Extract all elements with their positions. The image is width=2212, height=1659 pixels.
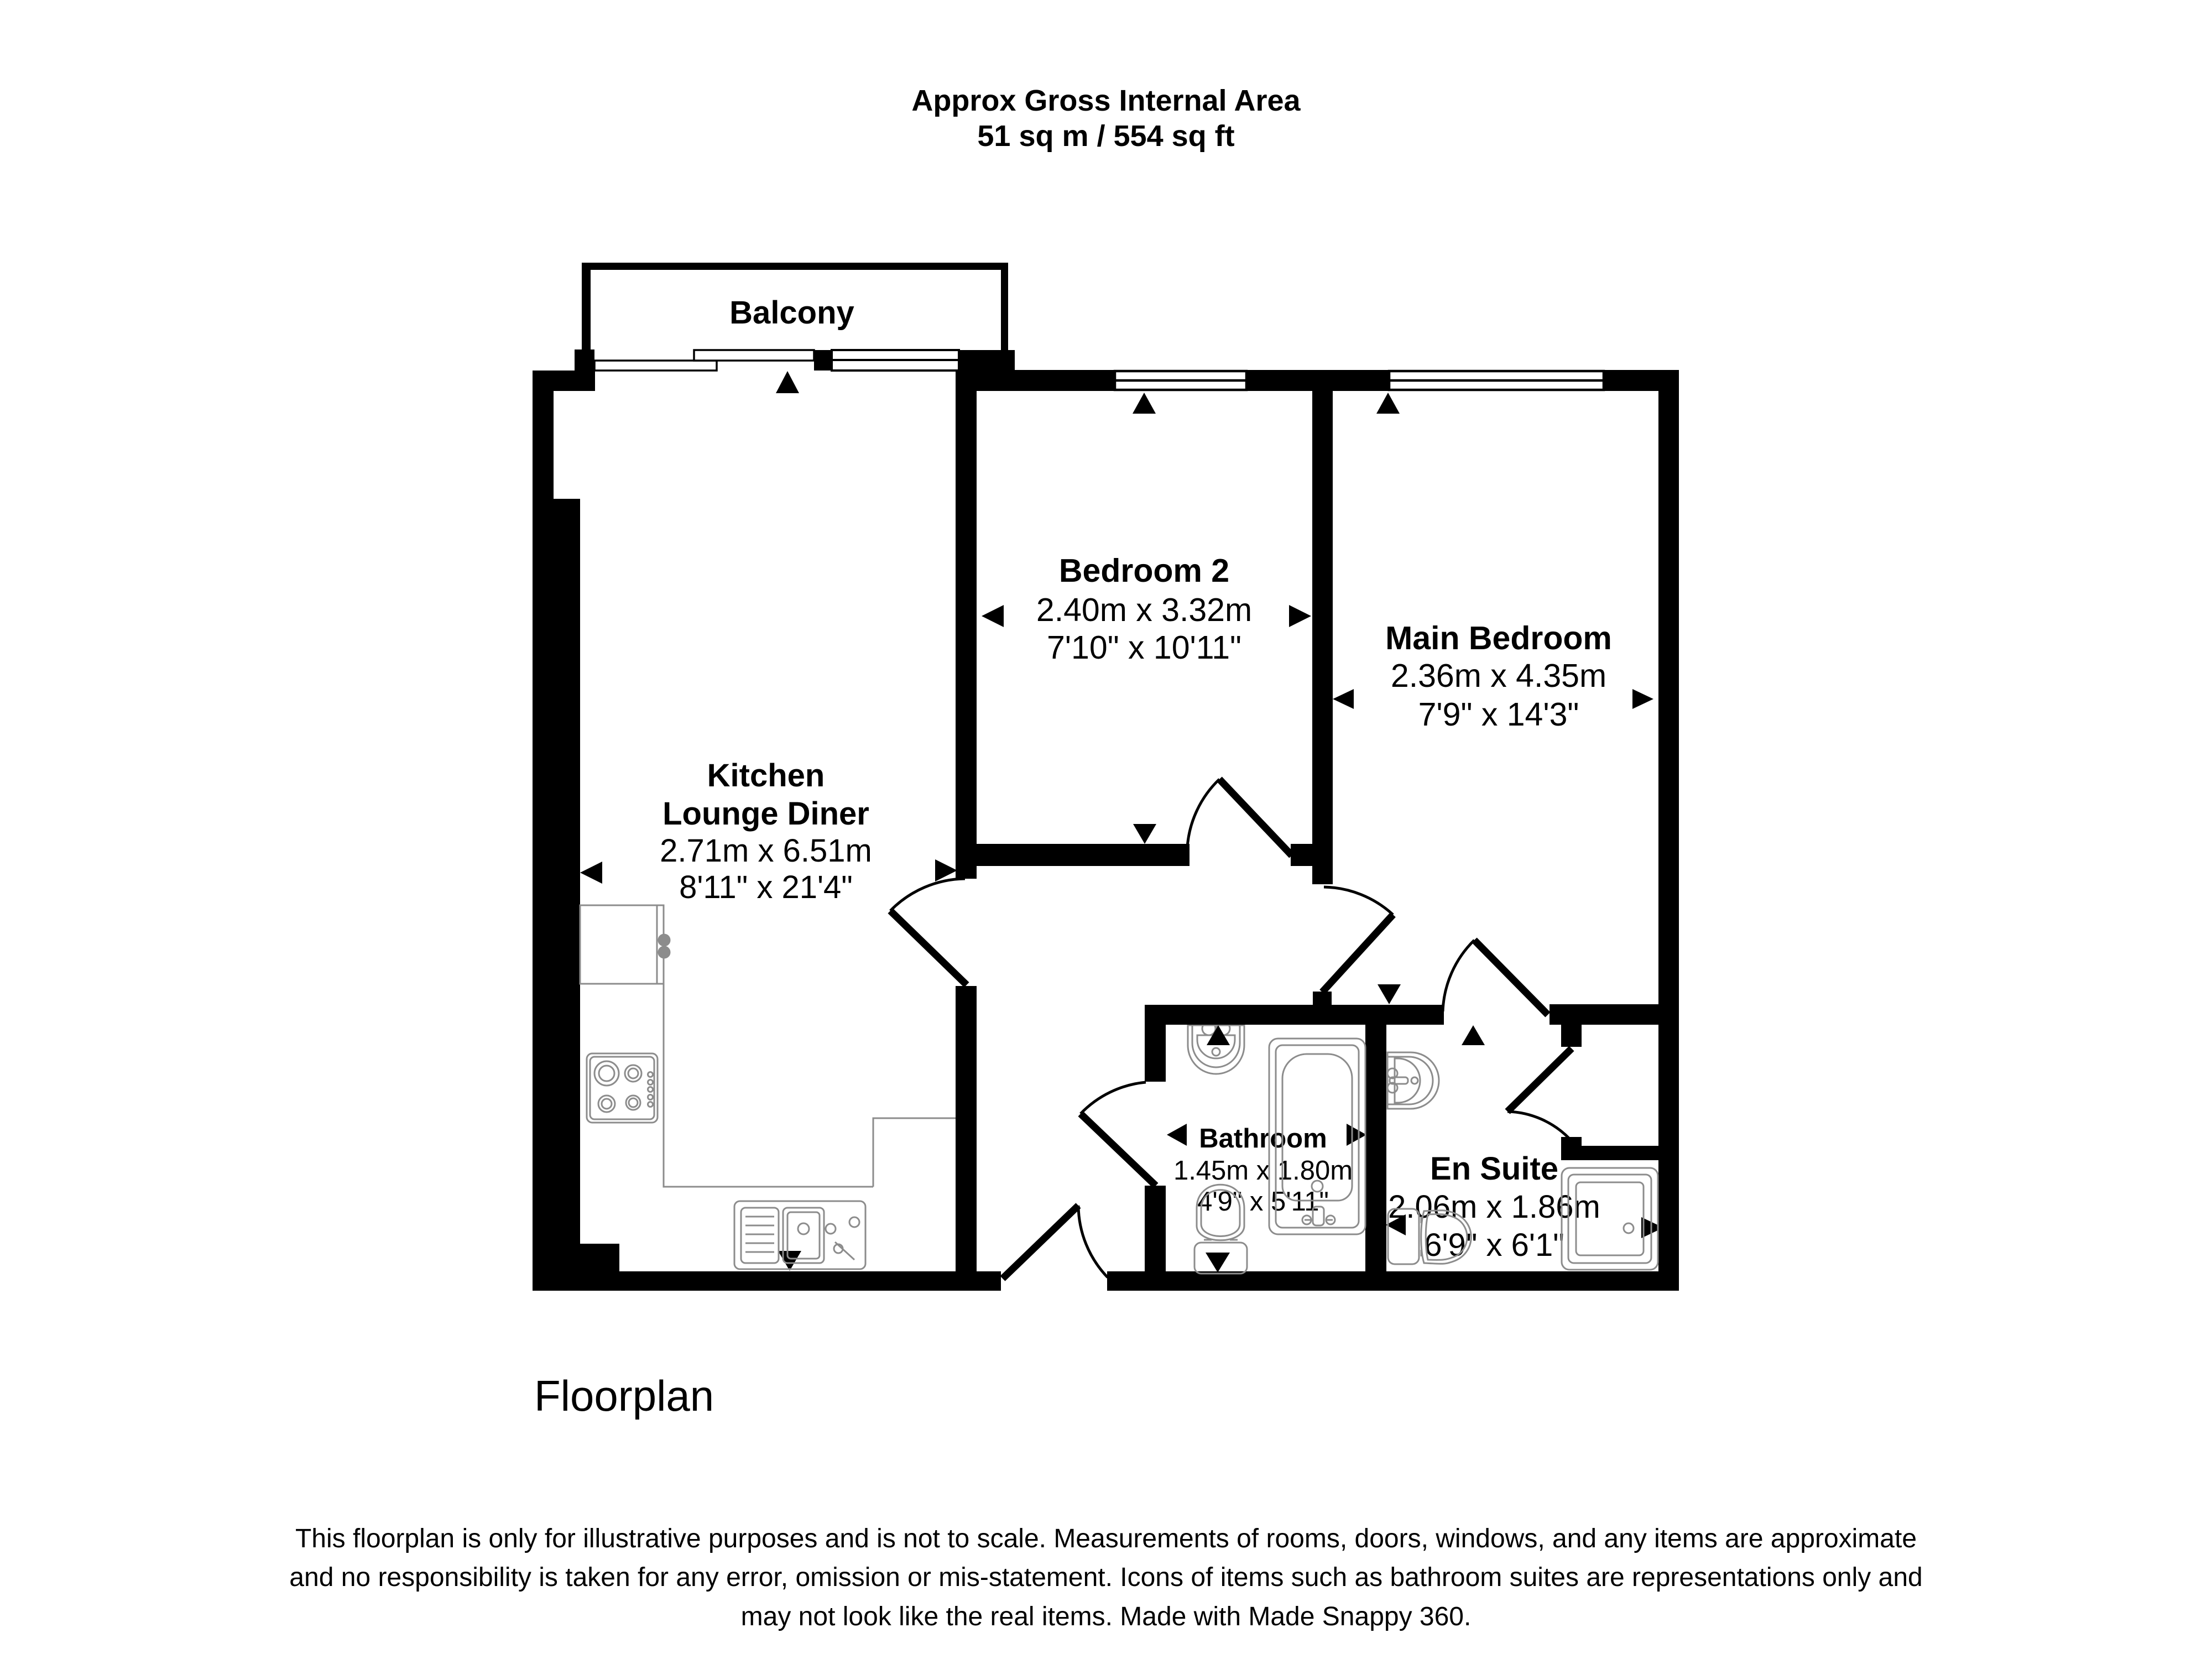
svg-text:51 sq m / 554 sq ft: 51 sq m / 554 sq ft: [977, 119, 1234, 153]
svg-text:8'11" x 21'4": 8'11" x 21'4": [679, 869, 853, 905]
svg-text:Main Bedroom: Main Bedroom: [1385, 620, 1612, 656]
svg-text:Floorplan: Floorplan: [534, 1371, 714, 1420]
svg-text:2.71m x 6.51m: 2.71m x 6.51m: [660, 833, 872, 869]
svg-text:may not look like the real ite: may not look like the real items. Made w…: [741, 1602, 1472, 1631]
svg-text:7'9" x 14'3": 7'9" x 14'3": [1418, 696, 1579, 733]
svg-text:Balcony: Balcony: [729, 295, 854, 331]
svg-text:6'9" x 6'1": 6'9" x 6'1": [1424, 1227, 1564, 1263]
svg-text:Bedroom 2: Bedroom 2: [1059, 552, 1229, 589]
svg-text:Approx Gross Internal Area: Approx Gross Internal Area: [911, 84, 1301, 117]
svg-text:En Suite: En Suite: [1430, 1151, 1558, 1187]
svg-text:7'10" x 10'11": 7'10" x 10'11": [1047, 629, 1241, 666]
svg-text:Kitchen: Kitchen: [707, 758, 825, 794]
svg-text:This floorplan is only for ill: This floorplan is only for illustrative …: [295, 1524, 1917, 1553]
svg-text:and no responsibility is taken: and no responsibility is taken for any e…: [289, 1563, 1922, 1592]
svg-text:Lounge Diner: Lounge Diner: [662, 796, 869, 832]
svg-text:4'9" x 5'11": 4'9" x 5'11": [1197, 1187, 1329, 1217]
svg-text:2.36m x 4.35m: 2.36m x 4.35m: [1391, 658, 1606, 694]
svg-text:1.45m x 1.80m: 1.45m x 1.80m: [1173, 1156, 1353, 1186]
svg-text:Bathroom: Bathroom: [1199, 1124, 1327, 1154]
svg-text:2.40m x 3.32m: 2.40m x 3.32m: [1036, 592, 1252, 628]
